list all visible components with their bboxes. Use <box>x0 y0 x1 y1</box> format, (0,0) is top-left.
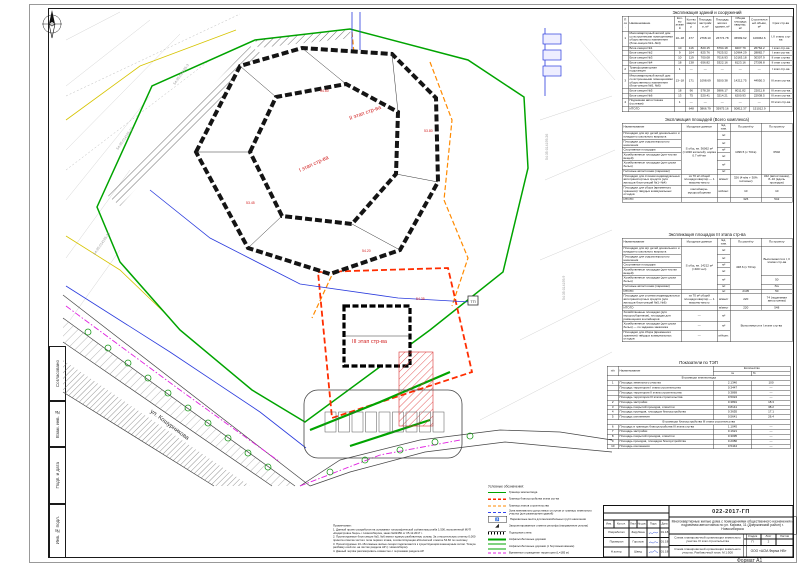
cell: Выполняются в I этапе стр-ва <box>730 310 792 341</box>
table-title: Экспликация площадок III этапа стр-ва <box>622 232 792 237</box>
sig-name: Швед <box>629 547 648 558</box>
cell: Площадки для стоянки индивидуальных авто… <box>622 174 681 186</box>
table-title: Экспликация зданий и сооружений <box>622 10 792 15</box>
cell: Кол-во квартир <box>685 16 697 31</box>
table-tep-wrap: Показатели по ТЭП п/пНаименованиеКоличес… <box>607 360 790 449</box>
cell: 326 (4 м/м + 30% гостевых) <box>730 174 761 186</box>
cell: 13–18 <box>674 74 685 89</box>
legend: Условные обозначения: Граница землеотвод… <box>488 485 602 557</box>
cell <box>769 107 792 112</box>
cell: — <box>731 98 749 106</box>
cell: — <box>731 66 749 74</box>
cell: 151012.9 <box>749 107 769 112</box>
cell: 542 <box>761 197 792 202</box>
cell: 1098.69 <box>697 74 713 89</box>
cell: Хозяйственные площадки (для чистки вещей… <box>622 268 681 276</box>
titleblock: Изм. Кол.уч. Лист № док. Подп. Дата Разр… <box>603 505 793 557</box>
svg-text:54:35:014195:9: 54:35:014195:9 <box>562 276 566 300</box>
legend-item: Граница землеотвода <box>488 489 602 496</box>
legend-title: Условные обозначения: <box>488 485 602 489</box>
road-network <box>63 295 612 486</box>
cell: Многоквартирный жилой дом со встроенными… <box>628 31 674 46</box>
stage-label-3: III этап стр-ва <box>352 339 388 345</box>
cell: Кол-во этажей <box>674 16 685 31</box>
cell: — <box>749 98 769 106</box>
cell: 648 <box>685 107 697 112</box>
table-buildings-wrap: Экспликация зданий и сооружений Поз.Наим… <box>622 10 792 112</box>
project-name: Многоквартирные жилые дома с помещениями… <box>669 517 797 535</box>
cell: — <box>713 66 731 74</box>
table-areas-stage-wrap: Экспликация площадок III этапа стр-ва На… <box>622 232 792 342</box>
cell: Площадки для отдыха взрослого населения <box>622 140 681 148</box>
cell: По расчёту <box>730 238 761 246</box>
note-item: 3. Проектируемые 13–18-этажные жилые сек… <box>333 543 486 549</box>
cell: — <box>697 98 713 106</box>
asphalt-path-icon <box>488 539 506 541</box>
table-areas-stage: НаименованиеИсходные данныеЕд. изм.По ра… <box>622 238 793 342</box>
temp-fence-icon <box>488 553 506 554</box>
svg-text:53.80: 53.80 <box>424 129 433 133</box>
sheet-subtitle: Схема планировочной организации земельно… <box>669 545 747 558</box>
notes: Примечание: 1. Данный проект разработан … <box>333 524 486 554</box>
cell: м² <box>717 131 730 139</box>
svg-text:54.20: 54.20 <box>362 249 371 253</box>
cell: Хозяйственные площадки (для мусоросборни… <box>622 310 681 322</box>
cell: Площадки для отдыха взрослого населения <box>622 255 681 263</box>
retaining-wall-icon <box>488 531 506 534</box>
cell: м² <box>717 322 730 330</box>
boundary-line-icon <box>488 492 506 493</box>
legend-item: ◢Запроектированные отметки рельефа (напр… <box>488 523 602 530</box>
table-tep: п/пНаименованиеКоличествога%В границах з… <box>607 366 791 449</box>
cell: Хозяйственные площадки (для сушки белья)… <box>622 322 681 330</box>
cell: По проекту <box>761 123 792 131</box>
cell: Общая площадь квартир, м² <box>731 16 749 31</box>
cell: 50812.37 <box>731 107 749 112</box>
tp-label: ТП <box>470 299 475 304</box>
svg-text:53.45: 53.45 <box>246 201 255 205</box>
cell <box>674 107 685 112</box>
cell: 50 <box>761 276 792 284</box>
cell: Площадь озеленения <box>618 444 713 449</box>
cell: — <box>681 330 717 342</box>
sig-role: Н.контр. <box>604 547 630 558</box>
cell: III этап стр-ва <box>769 98 792 106</box>
legend-item: Граница этапов строительства <box>488 503 602 510</box>
asphalt-path-curb-icon <box>488 543 506 550</box>
signature <box>647 547 661 558</box>
cell: 44950.3 <box>749 74 769 89</box>
signature-scribble-icon <box>648 549 659 555</box>
cell: м²/конт. <box>717 330 730 342</box>
cell: Выполняются в I, II этапах стр-ва <box>761 246 792 276</box>
cell: 1096.5 (х 70/га) <box>730 131 761 174</box>
table-title: Экспликация площадей (Всего комплекса) <box>622 117 792 122</box>
cell: — <box>713 98 731 106</box>
cell: III этап стр-ва <box>769 74 792 89</box>
cell: м/мест <box>717 294 730 306</box>
cell: 36599.62 <box>731 31 749 46</box>
legend-item: Зона минимально допустимых отступов от г… <box>488 509 602 516</box>
cell: м² <box>717 268 730 276</box>
cell: 10 <box>761 186 792 198</box>
table-buildings: Поз.НаименованиеКол-во этажейКол-во квар… <box>622 16 793 112</box>
cell <box>717 197 730 202</box>
cell: 438.6 (х 70/га) <box>730 246 761 289</box>
note-item: 4. Данный чертёж рассматривать совместно… <box>333 550 486 553</box>
cell: 1 <box>674 66 685 74</box>
signature-scribble-icon <box>648 539 659 545</box>
cell: 326 <box>730 197 761 202</box>
titleblock-wrap: Изм. Кол.уч. Лист № док. Подп. Дата Разр… <box>603 505 792 557</box>
cell: из 70 м² общей площади квартир — 1 машин… <box>681 294 717 306</box>
cell: — <box>752 444 791 449</box>
cell: 1 <box>674 98 685 106</box>
cell: Исходные данные <box>681 123 717 131</box>
cell: контейнеры-мусоросборники <box>681 186 717 198</box>
cell: из 70 м² общей площади квартир — 1 машин… <box>681 174 717 186</box>
cell: Многоквартирный жилой дом со встроенными… <box>628 74 674 89</box>
cell: 6502 <box>761 131 792 174</box>
cell: Срок стр-ва <box>769 16 792 31</box>
cell: Площадки для игр детей дошкольного и мла… <box>622 246 681 254</box>
legend-item: Подпорная стена <box>488 530 602 537</box>
cell: Трансформаторная подстанция <box>628 66 674 74</box>
signature-scribble-icon <box>648 530 659 536</box>
cell: 342 (автостоянка), 8–10 (вдоль проездов) <box>761 174 792 186</box>
cell: м² <box>717 140 730 148</box>
cell: ИТОГО <box>628 107 674 112</box>
company-name: ООО «АСМ-Фирма НВ» <box>744 545 794 558</box>
cell: Наименование <box>622 123 681 131</box>
svg-text:54:35:014195:26: 54:35:014195:26 <box>545 134 549 160</box>
improvement-boundary-icon <box>488 498 506 500</box>
cell: 26774.78 <box>713 31 731 46</box>
cell: Исходные данные <box>681 238 717 246</box>
buildings: ТП <box>196 48 478 366</box>
cell: 171 <box>685 74 697 89</box>
cell: 10 <box>730 186 761 198</box>
drawing-sheet: Согласовано Взам. инв. № Подп. и дата Ин… <box>0 0 800 565</box>
note-item: 2. Проектируемые блок-секции №5, №6 имею… <box>333 536 486 542</box>
cell: м² <box>717 310 730 322</box>
cell: S общ. кв. 36062 м² (≈1030 жителей), нор… <box>681 131 717 174</box>
svg-text:54.35: 54.35 <box>416 297 425 301</box>
cell: I этап стр-ва <box>769 66 792 74</box>
format-label: Формат А1 <box>737 558 762 564</box>
cell: Ед. изм. <box>717 123 730 131</box>
cell: п/п <box>607 366 618 376</box>
note-item: 1. Данный проект разработан на основании… <box>333 529 486 535</box>
cell: Наименование <box>618 366 713 376</box>
setback-zone-icon <box>488 512 506 513</box>
cell: м/мест <box>717 174 730 186</box>
cell: — <box>749 66 769 74</box>
cell: Ед. изм. <box>717 238 730 246</box>
cell: 74 (подземная автостоянка) <box>761 294 792 306</box>
cell: — <box>685 98 697 106</box>
cell: Подземная автостоянка (гостевая) <box>628 98 674 106</box>
cell: м² <box>717 246 730 254</box>
table-title: Показатели по ТЭП <box>607 360 790 365</box>
cell: 9200.38 <box>713 74 731 89</box>
cell: Строительный объём, м³ <box>749 16 769 31</box>
cell: Наименование <box>622 238 681 246</box>
cell: 106062.6 <box>749 31 769 46</box>
svg-text:54:35:014195:23: 54:35:014195:23 <box>93 232 111 256</box>
cell: Площадки для стоянки индивидуальных авто… <box>622 294 681 306</box>
cell: 0.5444 <box>713 444 752 449</box>
cell: — <box>697 66 713 74</box>
cell: — <box>685 66 697 74</box>
wheelchair-icon: ♿ <box>488 516 507 523</box>
legend-item: ♿Парковочные места для маломобильных гру… <box>488 516 602 523</box>
cell: м² <box>717 276 730 284</box>
cell: Площадки для сбора (временного хранения)… <box>622 330 681 342</box>
cell: Хозяйственные площадки (для сушки белья) <box>622 161 681 169</box>
legend-item: Асфальтобетонные дорожки (с бортовым кам… <box>488 543 602 550</box>
cell: S общ. кв. 14212 м² (≈400 чел) <box>681 246 717 289</box>
slope-mark-icon: ◢ <box>488 524 506 529</box>
cell: 35975.16 <box>713 107 731 112</box>
svg-text:54.60: 54.60 <box>320 89 329 93</box>
cell: — <box>681 322 717 330</box>
cell: По расчёту <box>730 123 761 131</box>
cell: 10 <box>607 444 618 449</box>
legend-item: Временное ограждение территории (L=185 м… <box>488 550 602 557</box>
cell: 2768.10 <box>697 31 713 46</box>
cell: 10–18 <box>674 31 685 46</box>
cell: Площадки для сбора (временного хранения)… <box>622 186 681 198</box>
cell: Площадки для игр детей дошкольного и мла… <box>622 131 681 139</box>
cell: Хозяйственные площадки (для чистки вещей… <box>622 153 681 161</box>
table-areas-total-wrap: Экспликация площадей (Всего комплекса) Н… <box>622 117 792 202</box>
cell: Площадь жилого здания, м² <box>713 16 731 31</box>
cell: 14212.75 <box>731 74 749 89</box>
cell: Площадь застройки, м² <box>697 16 713 31</box>
paved-area-hatch <box>399 352 433 426</box>
cell: Хозяйственные площадки (для сушки белья) <box>622 276 681 284</box>
cell: — <box>681 310 717 322</box>
cell: Наименование <box>628 16 674 31</box>
cell: м² <box>717 255 730 263</box>
cell: По проекту <box>761 238 792 246</box>
stage-boundary-icon <box>488 505 506 506</box>
north-arrow-icon <box>42 10 62 38</box>
notes-title: Примечание: <box>333 524 486 528</box>
legend-item: Граница благоустройства этапа стр-ва <box>488 496 602 503</box>
cell <box>681 197 717 202</box>
cell: м²/конт. <box>717 186 730 198</box>
legend-item: Асфальтобетонные дорожки <box>488 536 602 543</box>
cell: ИТОГО <box>622 197 681 202</box>
table-areas-total: НаименованиеИсходные данныеЕд. изм.По ра… <box>622 123 793 202</box>
cell: I, II этапы стр-ва <box>769 31 792 46</box>
cell: 3866.79 <box>697 107 713 112</box>
cell: м² <box>717 161 730 169</box>
cell: 477 <box>685 31 697 46</box>
cell: м² <box>717 153 730 161</box>
cell: 220 <box>730 294 761 306</box>
